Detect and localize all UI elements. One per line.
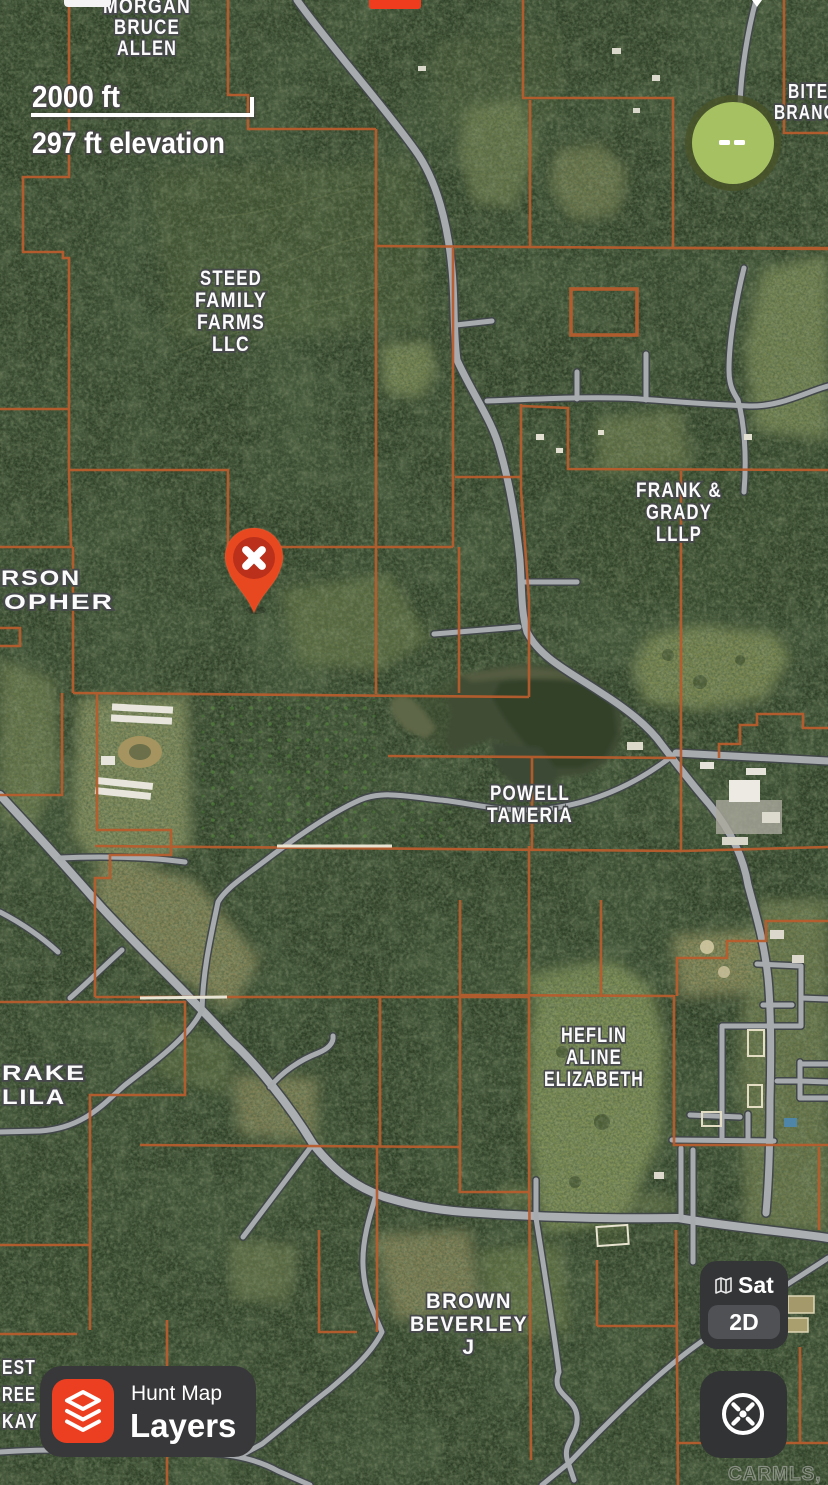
svg-text:BRUCE: BRUCE [114,16,180,39]
svg-text:FAMILY: FAMILY [195,289,267,312]
svg-text:ALLEN: ALLEN [117,37,177,60]
svg-text:Sat: Sat [738,1272,774,1298]
svg-text:J: J [462,1336,475,1359]
svg-text:OPHER: OPHER [4,591,114,614]
svg-text:BITES: BITES [788,81,828,103]
svg-text:RSON: RSON [1,567,81,590]
svg-text:CARMLS, INC: CARMLS, INC [728,1464,828,1485]
svg-text:LILA: LILA [2,1086,66,1109]
svg-text:ALINE: ALINE [566,1046,622,1069]
svg-text:297 ft elevation: 297 ft elevation [32,127,225,160]
svg-text:BROWN: BROWN [426,1290,512,1313]
svg-text:2000 ft: 2000 ft [32,79,120,114]
svg-text:KAY: KAY [2,1411,38,1433]
svg-text:Layers: Layers [130,1407,236,1444]
svg-text:EST: EST [2,1357,36,1379]
svg-text:FARMS: FARMS [197,311,265,334]
svg-text:STEED: STEED [200,267,262,290]
svg-text:POWELL: POWELL [490,782,570,805]
svg-text:BRANC: BRANC [774,102,828,124]
svg-text:TAMERIA: TAMERIA [487,804,573,827]
svg-text:2D: 2D [729,1309,758,1335]
svg-text:LLLP: LLLP [656,523,702,546]
svg-text:FRANK &: FRANK & [636,479,722,502]
svg-text:RAKE: RAKE [2,1062,86,1085]
svg-text:REE: REE [2,1384,36,1406]
svg-text:LLC: LLC [212,333,250,356]
svg-text:GRADY: GRADY [646,501,712,524]
svg-text:ELIZABETH: ELIZABETH [544,1068,644,1091]
svg-text:Hunt Map: Hunt Map [131,1382,222,1405]
svg-text:BEVERLEY: BEVERLEY [410,1313,528,1336]
svg-text:HEFLIN: HEFLIN [561,1024,627,1047]
